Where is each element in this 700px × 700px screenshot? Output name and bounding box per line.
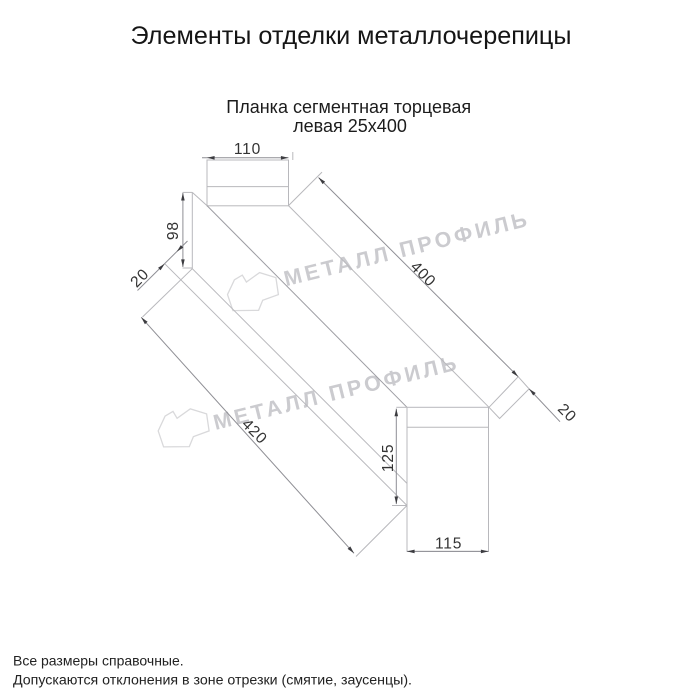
svg-text:20: 20 (127, 266, 152, 291)
svg-text:98: 98 (165, 221, 182, 240)
svg-text:20: 20 (554, 401, 579, 426)
svg-text:Допускаются отклонения в зоне: Допускаются отклонения в зоне отрезки (с… (13, 673, 412, 689)
svg-text:115: 115 (435, 535, 462, 552)
svg-text:110: 110 (234, 141, 261, 158)
svg-text:Элементы отделки металлочерепи: Элементы отделки металлочерепицы (131, 22, 572, 50)
svg-text:Планка сегментная торцевая: Планка сегментная торцевая (226, 97, 471, 117)
svg-text:Все размеры справочные.: Все размеры справочные. (13, 653, 184, 669)
svg-text:МЕТАЛЛ ПРОФИЛЬ: МЕТАЛЛ ПРОФИЛЬ (281, 207, 532, 291)
svg-text:левая 25х400: левая 25х400 (293, 116, 407, 136)
svg-text:400: 400 (407, 258, 439, 290)
svg-text:125: 125 (380, 444, 397, 472)
